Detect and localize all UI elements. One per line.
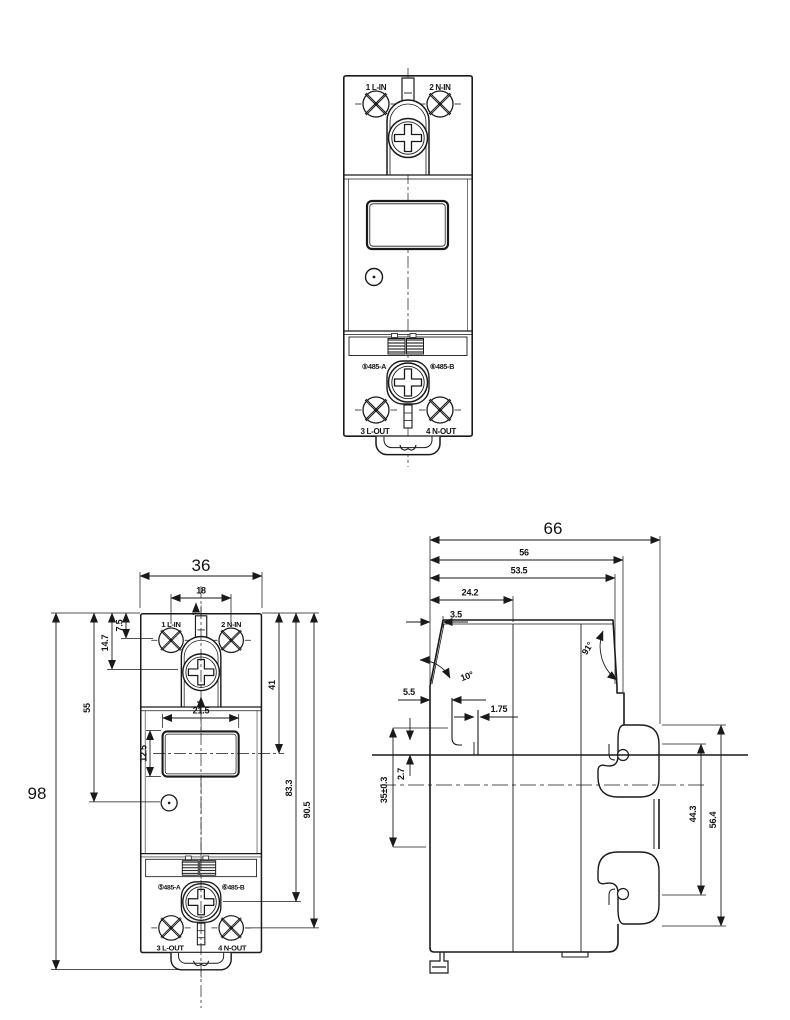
dim-2-7: 2.7: [396, 768, 406, 780]
dim-1-75: 1.75: [491, 704, 508, 714]
drawing-canvas: 1 L-IN 2 N-IN ⑤485-A ⑥485-B: [0, 0, 790, 1020]
bottom-clip: [430, 952, 448, 973]
dim-body: 55: [82, 703, 92, 713]
dim-angle-front: 10°: [459, 669, 475, 683]
dim-56-4: 56.4: [708, 811, 718, 828]
dim-terminal-center: 7.5: [115, 619, 125, 631]
dim-56: 56: [519, 548, 529, 558]
dim-overall-width: 36: [192, 556, 211, 575]
dim-screw-out-center: 83.3: [284, 779, 294, 796]
front-view-dimensioned: 36 18 7.5 14.7 55 98 41 83.3 90.5: [20, 548, 355, 1020]
dim-display-center: 41: [267, 680, 277, 690]
dim-terminal-out-center: 90.5: [302, 801, 312, 818]
dim-display-width: 21.5: [193, 706, 210, 716]
dim-angle-back: 91°: [580, 640, 596, 657]
dim-44-3: 44.3: [688, 805, 698, 822]
dim-rail: 35±0.3: [379, 777, 389, 803]
dim-24-2: 24.2: [462, 588, 479, 598]
dim-display-height: 12.5: [139, 745, 149, 762]
dim-overall-height: 98: [28, 784, 47, 803]
dim-screw-center: 14.7: [100, 634, 110, 651]
side-view-dimensioned: 66 56 53.5 24.2 3.5 10° 91° 5.5 1.75 2.7: [356, 512, 756, 1017]
front-view-plain: [322, 68, 492, 473]
dim-terminal-pitch: 18: [196, 586, 206, 596]
dim-3-5: 3.5: [450, 610, 462, 620]
dim-5-5: 5.5: [403, 687, 415, 697]
dim-53-5: 53.5: [511, 566, 528, 576]
dim-depth: 66: [544, 519, 563, 538]
